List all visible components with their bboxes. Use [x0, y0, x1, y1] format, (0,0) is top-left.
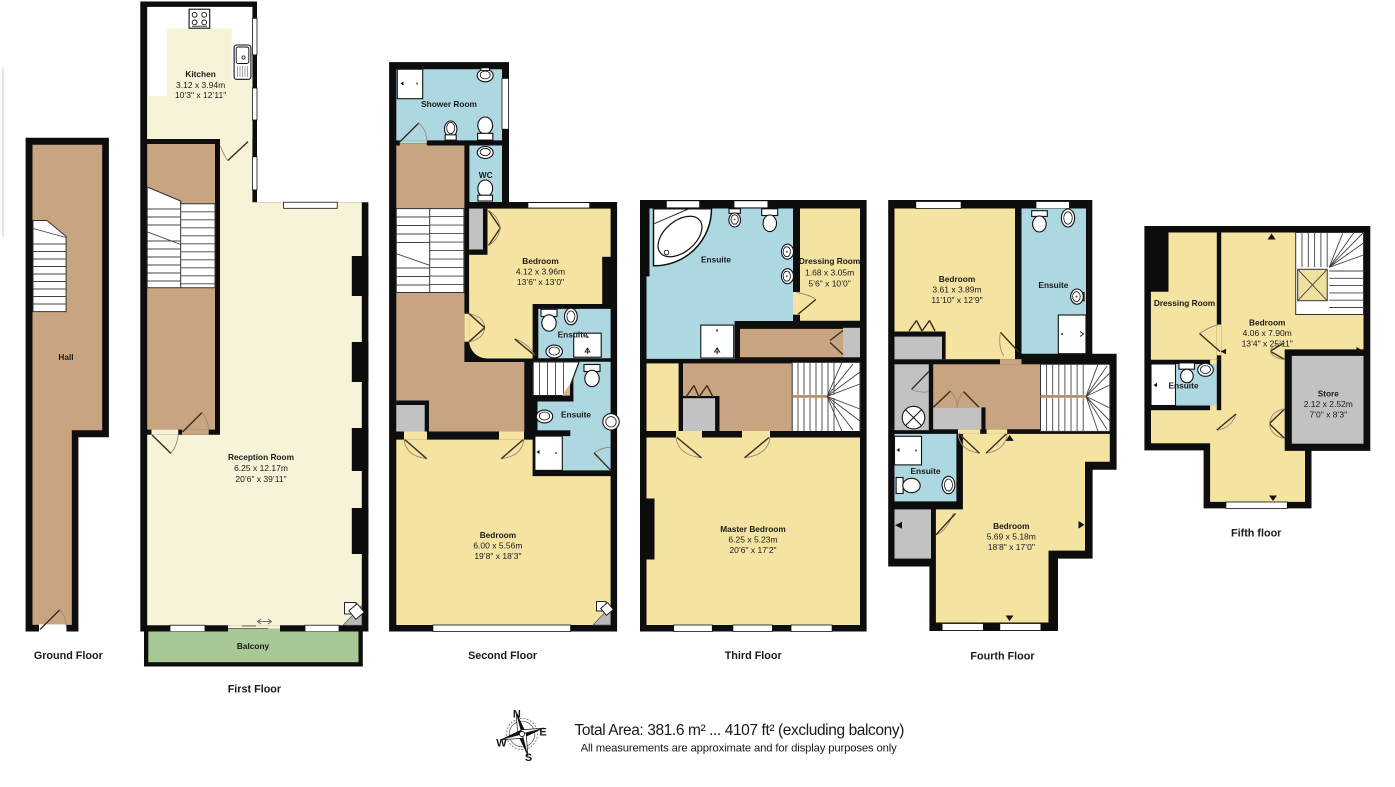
svg-text:Dressing Room: Dressing Room: [1154, 298, 1215, 308]
svg-text:Shower Room: Shower Room: [421, 99, 477, 109]
svg-text:6.00 x 5.56m: 6.00 x 5.56m: [473, 541, 522, 551]
svg-text:Reception Room: Reception Room: [228, 452, 294, 462]
svg-text:N: N: [513, 709, 521, 721]
svg-text:13’4" x 25’11": 13’4" x 25’11": [1242, 339, 1293, 349]
svg-text:Master Bedroom: Master Bedroom: [720, 524, 785, 534]
svg-text:Dressing Room: Dressing Room: [799, 256, 860, 266]
svg-text:19’8" x 18’3": 19’8" x 18’3": [474, 551, 521, 561]
svg-text:Kitchen: Kitchen: [185, 69, 215, 79]
svg-text:Ensuite: Ensuite: [701, 255, 731, 265]
svg-text:Store: Store: [1318, 389, 1340, 399]
svg-text:5’6" x 10’0": 5’6" x 10’0": [808, 279, 850, 289]
svg-text:Bedroom: Bedroom: [522, 256, 558, 266]
svg-text:All measurements are approxima: All measurements are approximate and for…: [581, 743, 897, 755]
svg-text:3.61 x 3.89m: 3.61 x 3.89m: [932, 285, 981, 295]
svg-text:Bedroom: Bedroom: [1249, 318, 1285, 328]
svg-text:Balcony: Balcony: [237, 641, 270, 651]
svg-text:Ground Floor: Ground Floor: [34, 650, 104, 662]
svg-text:18’8" x 17’0": 18’8" x 17’0": [988, 542, 1035, 552]
svg-text:Ensuite: Ensuite: [1169, 381, 1199, 391]
svg-text:Ensuite: Ensuite: [911, 466, 941, 476]
svg-text:7’0" x 8’3": 7’0" x 8’3": [1309, 410, 1347, 420]
svg-text:5.69 x 5.18m: 5.69 x 5.18m: [987, 532, 1036, 542]
svg-text:13’6" x 13’0": 13’6" x 13’0": [517, 277, 564, 287]
svg-text:W: W: [496, 738, 507, 750]
svg-text:20’6" x 39’11": 20’6" x 39’11": [235, 474, 286, 484]
svg-text:Total Area: 381.6 m² ... 4107: Total Area: 381.6 m² ... 4107 ft² (exclu…: [575, 722, 905, 739]
svg-text:2.12 x 2.52m: 2.12 x 2.52m: [1304, 399, 1353, 409]
svg-text:10’3" x 12’11": 10’3" x 12’11": [175, 90, 226, 100]
svg-text:E: E: [539, 727, 546, 739]
svg-text:Ensuite: Ensuite: [558, 330, 588, 340]
svg-text:WC: WC: [479, 170, 493, 180]
svg-text:6.25 x 5.23m: 6.25 x 5.23m: [728, 535, 777, 545]
svg-text:Fifth floor: Fifth floor: [1231, 528, 1282, 540]
svg-text:Bedroom: Bedroom: [993, 521, 1029, 531]
svg-text:11’10" x 12’9": 11’10" x 12’9": [931, 295, 982, 305]
svg-text:Third Floor: Third Floor: [725, 650, 783, 662]
svg-text:Hall: Hall: [58, 352, 73, 362]
svg-text:S: S: [525, 752, 532, 764]
svg-text:6.25 x 12.17m: 6.25 x 12.17m: [234, 463, 288, 473]
svg-text:Ensuite: Ensuite: [1038, 280, 1068, 290]
svg-text:1.68 x 3.05m: 1.68 x 3.05m: [805, 268, 854, 278]
svg-text:4.06 x 7.90m: 4.06 x 7.90m: [1243, 328, 1292, 338]
svg-text:First Floor: First Floor: [228, 684, 282, 696]
svg-text:Ensuite: Ensuite: [561, 410, 591, 420]
svg-text:3.12 x 3.94m: 3.12 x 3.94m: [176, 80, 225, 90]
svg-text:Second Floor: Second Floor: [468, 650, 538, 662]
svg-text:20’6" x 17’2": 20’6" x 17’2": [729, 545, 776, 555]
svg-text:Fourth Floor: Fourth Floor: [970, 651, 1035, 663]
svg-text:Bedroom: Bedroom: [939, 274, 975, 284]
svg-text:4.12 x 3.96m: 4.12 x 3.96m: [516, 267, 565, 277]
svg-text:Bedroom: Bedroom: [480, 530, 516, 540]
